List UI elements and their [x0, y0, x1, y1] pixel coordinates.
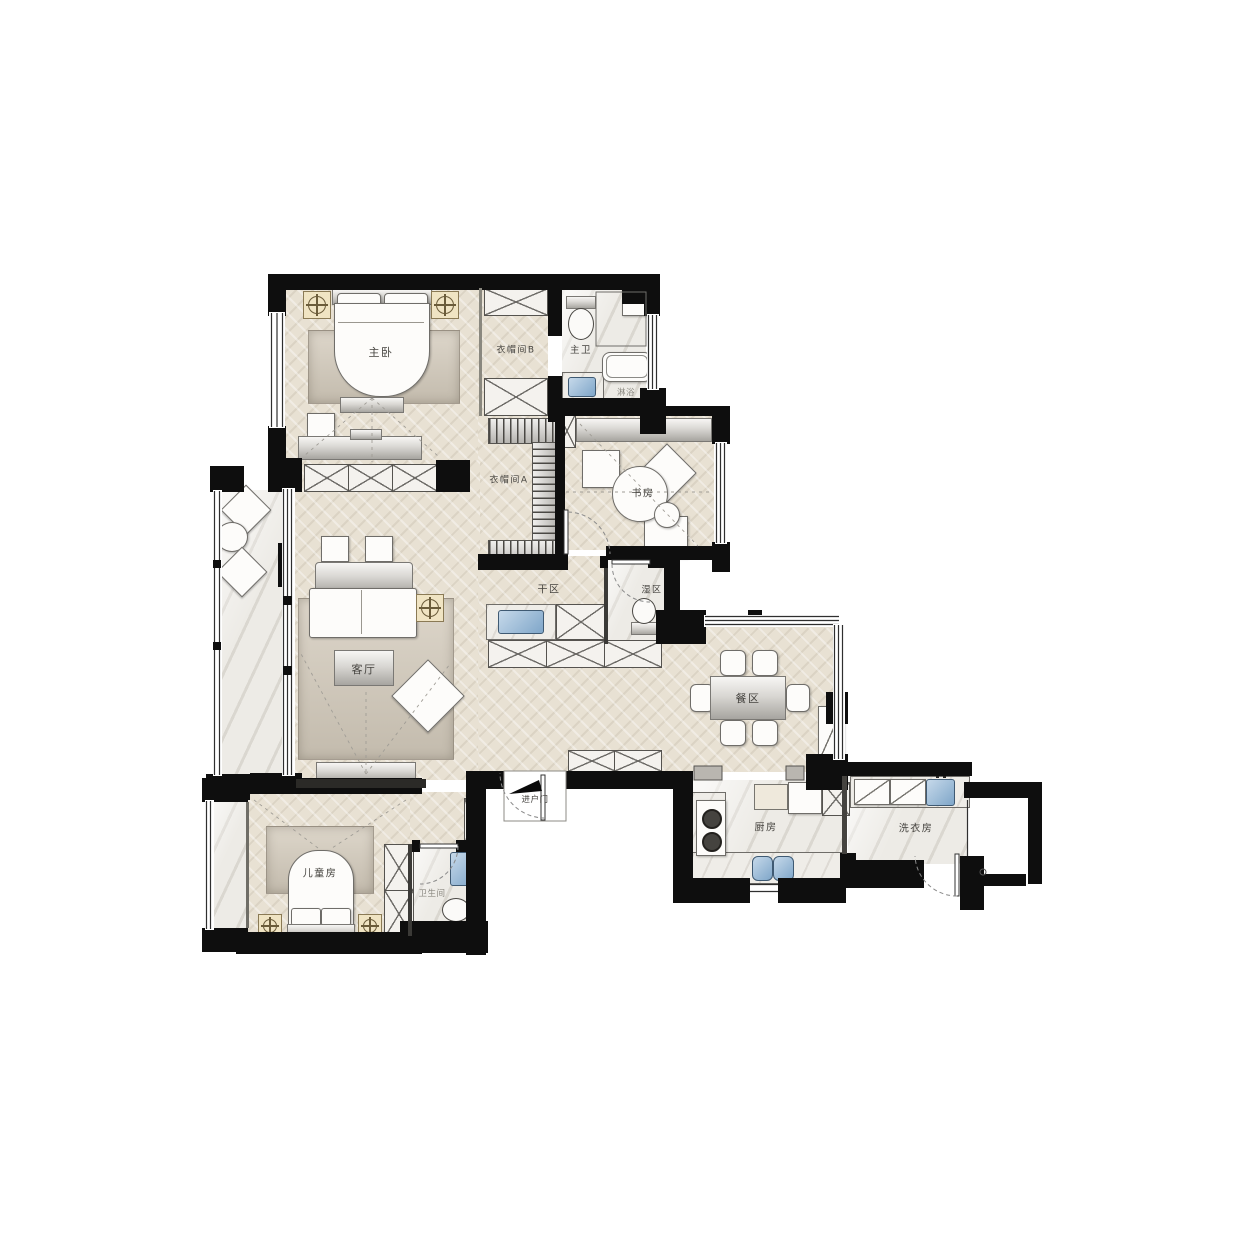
toilet-icon — [442, 898, 470, 922]
dresser-item — [350, 429, 382, 440]
dining-chair — [720, 720, 746, 746]
sink-icon — [568, 377, 596, 397]
dining-chair — [752, 650, 778, 676]
nightstand-ornament-icon — [358, 914, 382, 938]
kitchen-sink-icon — [752, 856, 773, 881]
room-label-cloakroom-a: 衣帽间A — [489, 473, 528, 486]
shoe-cabinet — [614, 750, 662, 772]
bedroom-sideboard — [392, 464, 438, 492]
study-side-table — [654, 502, 680, 528]
living-pouf — [365, 536, 393, 562]
cloakroom-a-rail — [488, 540, 556, 566]
sink-icon — [450, 852, 478, 886]
living-pouf — [321, 536, 349, 562]
stove-burner — [702, 832, 722, 852]
nightstand-ornament-icon — [431, 291, 459, 319]
dining-chair — [786, 684, 810, 712]
sofa — [309, 588, 417, 638]
nightstand-ornament-icon — [258, 914, 282, 938]
cloakroom-a-rail — [488, 418, 556, 444]
cloakroom-b-wardrobe — [484, 288, 548, 316]
study-cabinet — [558, 414, 576, 448]
toilet-icon — [568, 308, 594, 340]
kids-bed-headboard — [287, 924, 355, 938]
kids-wardrobe — [384, 890, 414, 938]
study-shelf — [576, 418, 712, 442]
cloakroom-a-rail — [532, 442, 558, 542]
bedroom-sideboard — [304, 464, 350, 492]
kids-wardrobe — [384, 844, 414, 892]
corridor-floor — [410, 792, 468, 846]
hall-cabinet — [488, 640, 548, 668]
shoe-cabinet — [568, 750, 616, 772]
sofa-cushion-divider — [361, 590, 362, 634]
room-label-laundry: 洗衣房 — [899, 820, 934, 835]
laundry-cabinet — [854, 779, 890, 805]
cloakroom-b-wardrobe — [484, 378, 548, 416]
room-label-master-bedroom: 主卧 — [369, 344, 394, 360]
room-label-bathroom: 卫生间 — [418, 887, 445, 899]
shower-niche — [622, 298, 648, 316]
side-room-floor — [968, 790, 1030, 876]
laundry-cabinet — [890, 779, 926, 805]
room-label-living-room: 客厅 — [352, 661, 377, 677]
toilet-icon — [632, 598, 656, 624]
kitchen-cabinet-x — [822, 782, 850, 816]
kitchen-island-box — [754, 784, 788, 810]
sink-icon — [498, 610, 544, 634]
room-label-wet-area: 湿区 — [641, 583, 662, 596]
tv-cabinet — [316, 762, 416, 782]
flush-button — [471, 906, 475, 910]
dining-chair — [720, 650, 746, 676]
dining-pantry-cabinet — [818, 706, 844, 762]
bathtub-inner — [606, 355, 648, 378]
nightstand-ornament-icon — [303, 291, 331, 319]
kids-bay-window-floor — [206, 800, 248, 930]
room-label-entry-door: 进户门 — [521, 793, 548, 805]
faucet-mark — [943, 769, 946, 778]
room-label-kitchen: 厨房 — [755, 819, 778, 834]
bathroom-cabinet — [414, 924, 436, 942]
hall-cabinet — [546, 640, 606, 668]
faucet-mark — [936, 769, 939, 778]
kitchen-cabinet — [788, 782, 822, 814]
hall-cabinet — [604, 640, 662, 668]
bed-bench — [340, 397, 404, 413]
side-table-ornament-icon — [416, 594, 444, 622]
room-label-master-bathroom: 主卫 — [570, 342, 592, 356]
bedroom-sideboard — [348, 464, 394, 492]
room-label-shower: 淋浴 — [617, 386, 635, 398]
dry-area-cabinet — [556, 604, 606, 640]
dining-chair — [752, 720, 778, 746]
room-label-cloakroom-b: 衣帽间B — [496, 343, 535, 356]
stove-burner — [702, 809, 722, 829]
floor-plan: 主卧 衣帽间B 主卫 淋浴 衣帽间A 书房 干区 湿区 客厅 餐区 进户门 厨房… — [0, 0, 1242, 1233]
room-label-dining-area: 餐区 — [736, 690, 761, 706]
entry-arrow-icon — [509, 780, 542, 794]
kitchen-sink-icon — [773, 856, 794, 881]
room-label-kids-room: 儿童房 — [303, 865, 338, 880]
corridor-slim-cabinet — [464, 798, 480, 844]
bed-linen-line — [338, 322, 424, 323]
room-label-study: 书房 — [632, 485, 655, 500]
room-label-dry-area: 干区 — [538, 581, 561, 596]
laundry-sink-icon — [926, 779, 955, 806]
